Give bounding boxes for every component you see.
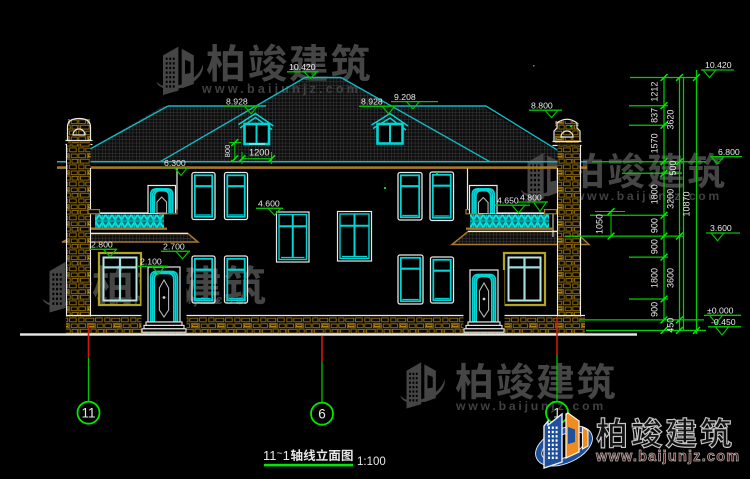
svg-text:1800: 1800: [650, 184, 660, 204]
svg-text:www.baijunjz.com: www.baijunjz.com: [455, 399, 606, 413]
svg-text:2.700: 2.700: [163, 242, 185, 252]
svg-text:www.baijunjz.com: www.baijunjz.com: [595, 449, 740, 465]
svg-text:1800: 1800: [650, 268, 660, 288]
svg-text:900: 900: [650, 302, 660, 317]
svg-text:6.800: 6.800: [718, 147, 740, 157]
svg-text:11: 11: [81, 406, 95, 421]
svg-text:3600: 3600: [666, 268, 676, 288]
svg-text:1570: 1570: [650, 133, 660, 153]
svg-text:2.100: 2.100: [140, 257, 162, 267]
svg-text:1200: 1200: [249, 148, 269, 158]
svg-text:1050: 1050: [595, 214, 605, 234]
svg-text:3620: 3620: [666, 110, 676, 130]
svg-text:6: 6: [318, 407, 326, 422]
svg-text:1:100: 1:100: [357, 456, 386, 468]
svg-text:900: 900: [650, 218, 660, 233]
svg-text:11~1: 11~1: [263, 448, 290, 464]
svg-text:-0.450: -0.450: [711, 317, 736, 327]
svg-text:837: 837: [650, 108, 660, 123]
svg-text:3.600: 3.600: [710, 223, 732, 233]
svg-text:www.baijunjz.com: www.baijunjz.com: [574, 189, 722, 203]
svg-text:9.208: 9.208: [394, 92, 416, 102]
svg-text:800: 800: [223, 145, 232, 158]
svg-text:±0.000: ±0.000: [707, 306, 734, 316]
svg-text:2.800: 2.800: [91, 240, 113, 250]
svg-text:8.800: 8.800: [531, 101, 553, 111]
svg-text:www.baijunjz.com: www.baijunjz.com: [201, 82, 361, 96]
svg-text:4.600: 4.600: [258, 199, 280, 209]
svg-text:900: 900: [650, 239, 660, 254]
svg-text:10.420: 10.420: [705, 60, 732, 70]
svg-text:450: 450: [666, 318, 676, 333]
svg-text:1212: 1212: [650, 82, 660, 102]
svg-text:6.300: 6.300: [164, 158, 186, 168]
svg-text:8.928: 8.928: [361, 97, 383, 107]
svg-text:500: 500: [668, 160, 678, 175]
svg-text:3200: 3200: [666, 189, 676, 209]
svg-text:10870: 10870: [682, 191, 692, 216]
svg-text:10.420: 10.420: [289, 62, 316, 72]
svg-text:4.650: 4.650: [497, 196, 519, 206]
svg-text:8.928: 8.928: [226, 97, 248, 107]
svg-text:4.800: 4.800: [520, 193, 542, 203]
